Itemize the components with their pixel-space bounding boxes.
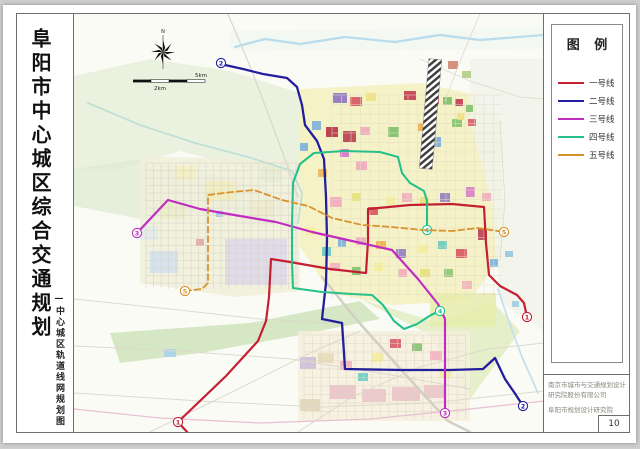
landuse-block [196, 239, 204, 246]
landuse-block [333, 93, 347, 103]
legend-items: 一号线二号线三号线四号线五号线 [552, 74, 622, 164]
landuse-block [438, 241, 447, 249]
svg-text:5: 5 [502, 228, 507, 236]
landuse-block [424, 385, 446, 398]
legend-line-swatch [558, 118, 584, 120]
legend-title: 图 例 [552, 34, 622, 53]
attribution: 南京市城市与交通规划设计 研究院股份有限公司 阜阳市规划设计研究院 10 [544, 374, 629, 432]
map-subtitle: —中心城区轨道线网规划图 [54, 294, 63, 427]
landuse-block [466, 187, 475, 197]
map-panel: 1122334455N5km2km [73, 13, 544, 433]
landuse-block [205, 181, 235, 201]
terminal-marker-line-3: 3 [440, 408, 449, 417]
landuse-block [352, 193, 361, 201]
legend-item-label: 二号线 [589, 95, 615, 107]
svg-text:5: 5 [183, 287, 188, 295]
landuse-block [468, 119, 476, 126]
svg-text:1: 1 [176, 418, 181, 426]
svg-text:5km: 5km [195, 73, 207, 79]
svg-text:4: 4 [438, 307, 443, 315]
terminal-marker-line-4: 4 [435, 306, 444, 315]
landuse-block [150, 251, 178, 273]
terminal-marker-line-5: 5 [180, 286, 189, 295]
landuse-block [343, 131, 356, 142]
terminal-marker-line-2: 2 [518, 401, 527, 410]
legend-item-label: 一号线 [589, 77, 615, 89]
svg-text:2km: 2km [154, 86, 166, 92]
landuse-block [318, 353, 334, 363]
landuse-block [482, 193, 491, 201]
landuse-block [420, 269, 430, 277]
legend-item: 二号线 [552, 92, 622, 110]
legend-item-label: 三号线 [589, 113, 615, 125]
svg-text:3: 3 [135, 229, 140, 237]
terminal-marker-line-2: 2 [216, 58, 225, 67]
landuse-block [402, 193, 412, 202]
legend: 图 例 一号线二号线三号线四号线五号线 [551, 24, 623, 363]
svg-text:N: N [161, 29, 165, 35]
landuse-block [358, 373, 368, 381]
title-panel: 阜阳市中心城区综合交通规划 —中心城区轨道线网规划图 [16, 13, 74, 433]
landuse-block [443, 97, 452, 105]
landuse-block [404, 91, 416, 100]
legend-line-swatch [558, 136, 584, 138]
landuse-block [386, 197, 395, 205]
landuse-block [452, 119, 462, 127]
page: 阜阳市中心城区综合交通规划 —中心城区轨道线网规划图 1122334455N5k… [0, 0, 640, 449]
terminal-marker-line-5: 5 [499, 227, 508, 236]
landuse-block [356, 161, 367, 170]
map-title: 阜阳市中心城区综合交通规划 [30, 28, 50, 340]
landuse-block [374, 263, 383, 271]
plan-sheet: 阜阳市中心城区综合交通规划 —中心城区轨道线网规划图 1122334455N5k… [3, 5, 636, 443]
page-number: 10 [598, 415, 629, 432]
landuse-block [505, 251, 513, 257]
landuse-block [360, 127, 370, 135]
landuse-block [300, 143, 308, 151]
terminal-marker-line-1: 1 [522, 312, 531, 321]
svg-text:3: 3 [443, 409, 448, 417]
landuse-block [312, 121, 321, 130]
screenshot-root: { "title_block": { "title": "阜阳市中心城区综合交通… [0, 0, 640, 449]
landuse-block [398, 269, 407, 277]
svg-text:1: 1 [525, 313, 530, 321]
landuse-block [366, 93, 376, 101]
landuse-block [448, 61, 458, 69]
attribution-line: 阜阳市规划设计研究院 [548, 405, 626, 415]
attribution-line: 南京市城市与交通规划设计 [548, 380, 626, 390]
legend-line-swatch [558, 100, 584, 102]
legend-item: 三号线 [552, 110, 622, 128]
landuse-block [388, 127, 399, 137]
legend-item-label: 五号线 [589, 149, 615, 161]
legend-item: 四号线 [552, 128, 622, 146]
legend-item: 五号线 [552, 146, 622, 164]
legend-item-label: 四号线 [589, 131, 615, 143]
terminal-marker-line-1: 1 [173, 417, 182, 426]
landuse-block [466, 105, 473, 112]
landuse-block [462, 71, 471, 78]
terminal-marker-line-3: 3 [132, 228, 141, 237]
landuse-block [300, 399, 320, 411]
landuse-block [225, 239, 287, 285]
landuse-block [444, 269, 453, 277]
landuse-block [412, 343, 422, 351]
transit-map: 1122334455N5km2km [74, 14, 543, 432]
landuse-block [512, 301, 519, 307]
legend-item: 一号线 [552, 74, 622, 92]
landuse-block [455, 99, 463, 106]
legend-line-swatch [558, 154, 584, 156]
landuse-block [250, 201, 274, 217]
svg-text:2: 2 [219, 59, 224, 67]
landuse-block [440, 193, 450, 202]
landuse-block [418, 245, 427, 253]
info-panel: 图 例 一号线二号线三号线四号线五号线 南京市城市与交通规划设计 研究院股份有限… [543, 13, 630, 433]
landuse-block [260, 166, 282, 182]
svg-text:2: 2 [521, 402, 526, 410]
attribution-line: 研究院股份有限公司 [548, 390, 626, 400]
legend-line-swatch [558, 82, 584, 84]
